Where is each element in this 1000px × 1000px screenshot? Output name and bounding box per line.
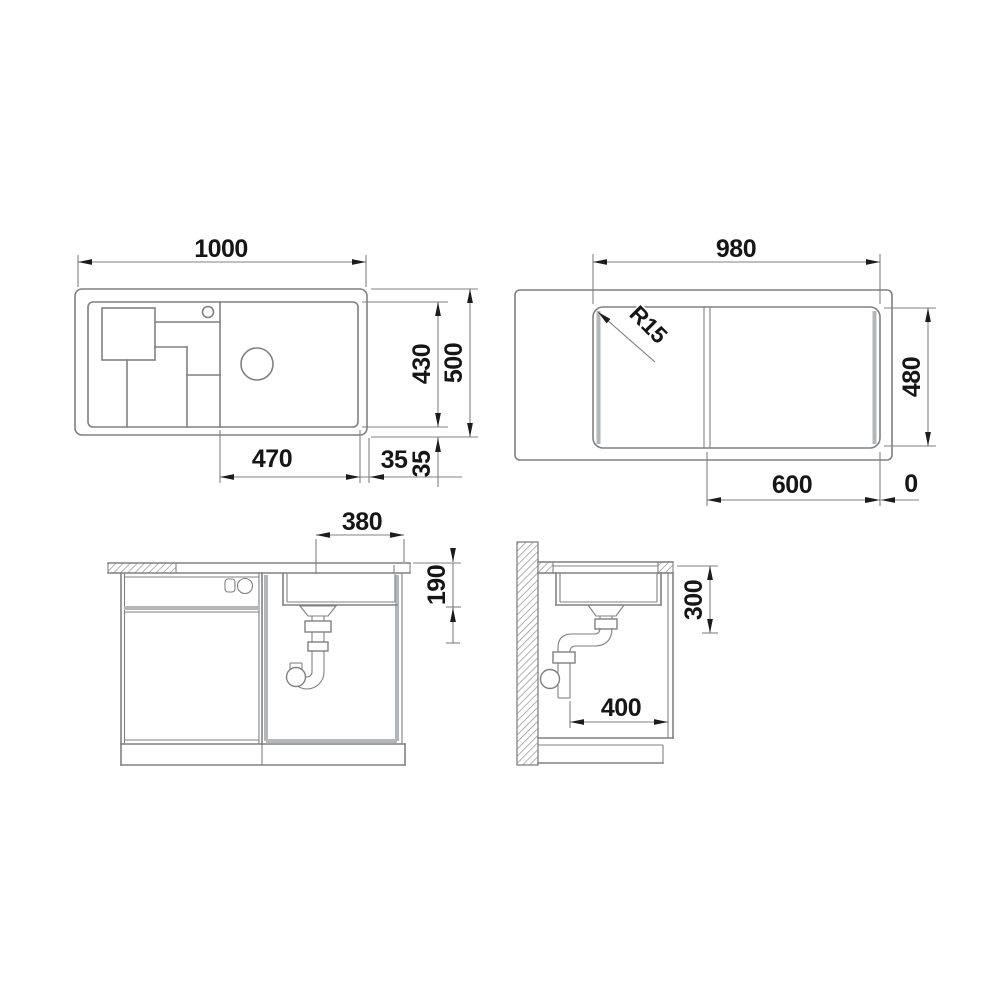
trap-union-nut <box>287 668 306 687</box>
countertop-section-hatch <box>108 563 176 573</box>
dim-plan-height-label: 500 <box>440 343 468 383</box>
trap-nut-side-2 <box>553 652 575 663</box>
dim-front-bowl-depth-label: 190 <box>423 565 451 605</box>
trap-nut-upper <box>305 621 331 632</box>
trap-nut-lower <box>308 642 328 651</box>
sink-dimension-drawing: 1000 430 500 35 470 35 <box>0 0 1000 1000</box>
dim-plan-rim-right-label: 35 <box>381 446 408 474</box>
trap-union-nut-side <box>541 670 560 689</box>
dim-cutout-width-label: 980 <box>716 235 756 263</box>
technical-drawing-page: 1000 430 500 35 470 35 <box>0 0 1000 1000</box>
wall-section <box>517 542 538 765</box>
dim-front-drain-offset-label: 380 <box>342 508 382 536</box>
trap-nut-side <box>595 619 617 629</box>
dim-side-clearance-label: 300 <box>680 580 708 620</box>
dim-cutout-edge-offset-label: 0 <box>904 470 917 498</box>
dim-side-drain-offset-label: 400 <box>601 694 641 722</box>
dim-plan-width-label: 1000 <box>194 235 248 263</box>
dim-plan-rim-bottom-label: 35 <box>408 450 436 477</box>
dim-plan-inner-height-label: 430 <box>408 344 436 384</box>
dim-plan-bowl-width-label: 470 <box>252 445 292 473</box>
dim-cutout-height-label: 480 <box>898 357 926 397</box>
dim-cutout-bowl-width-label: 600 <box>772 471 812 499</box>
